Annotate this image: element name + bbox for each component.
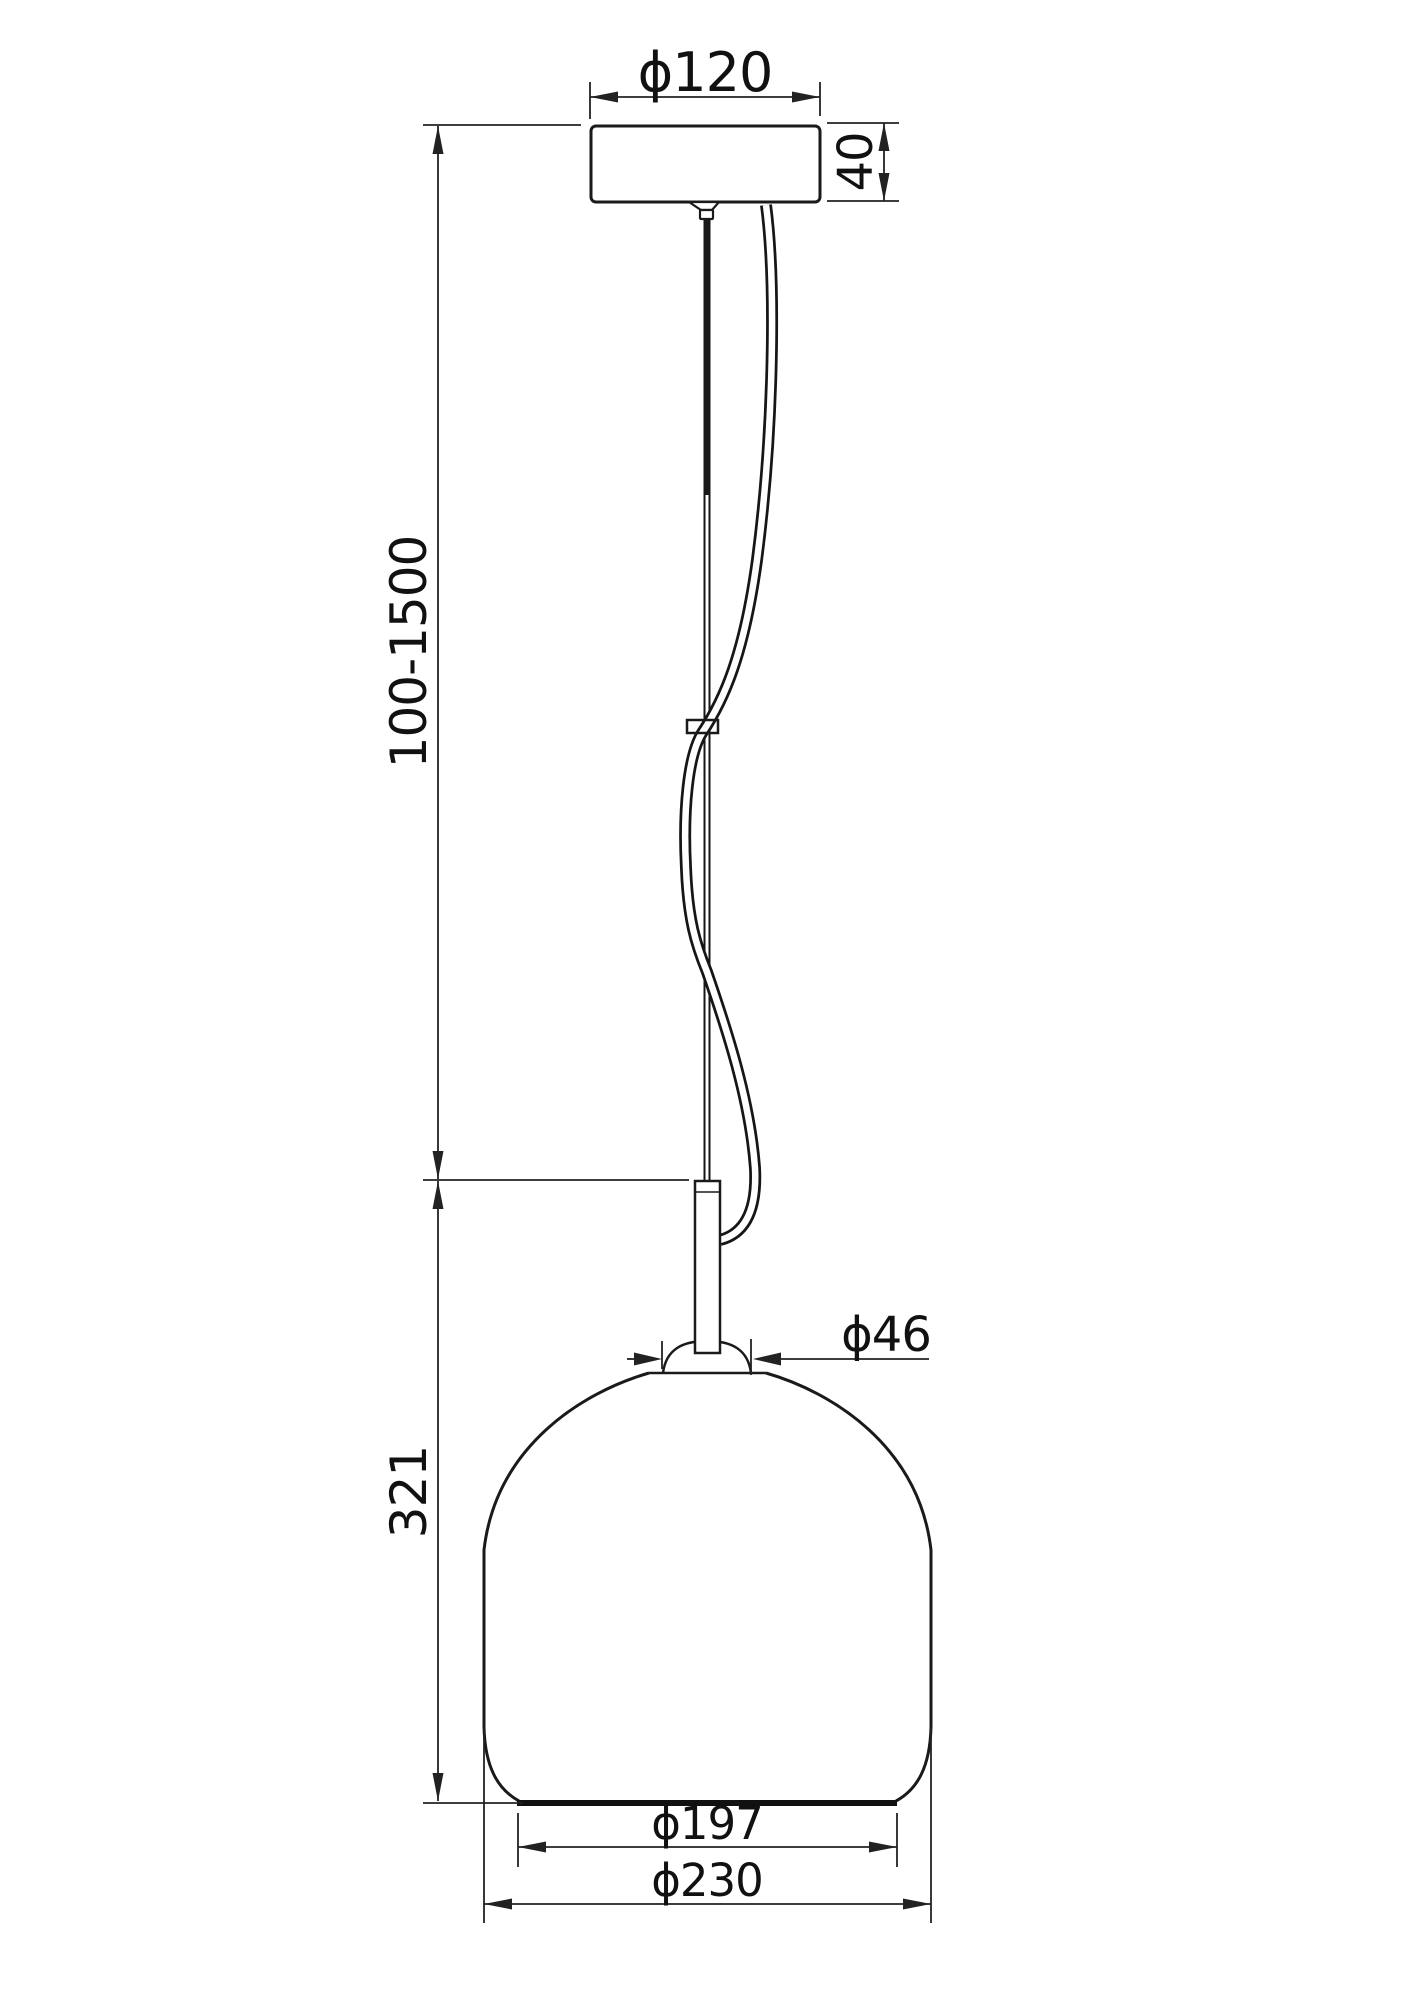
dim-suspension-length bbox=[423, 125, 689, 1180]
stem-tube bbox=[695, 1181, 720, 1353]
dimension-lines bbox=[423, 82, 931, 1923]
technical-drawing: ϕ120 40 100-1500 321 ϕ46 ϕ197 ϕ230 bbox=[0, 0, 1413, 2000]
cable-fitting-cone bbox=[689, 202, 719, 210]
shade-left-profile bbox=[484, 1373, 649, 1801]
label-canopy-diameter: ϕ120 bbox=[638, 41, 773, 104]
label-neck-diameter: ϕ46 bbox=[841, 1307, 931, 1363]
label-canopy-height: 40 bbox=[828, 132, 884, 191]
ceiling-canopy bbox=[591, 126, 820, 202]
drawing-canvas: ϕ120 40 100-1500 321 ϕ46 ϕ197 ϕ230 bbox=[0, 0, 1413, 2000]
label-suspension-length: 100-1500 bbox=[380, 536, 438, 769]
label-max-diameter: ϕ230 bbox=[651, 1854, 763, 1907]
label-shade-height: 321 bbox=[380, 1446, 438, 1538]
power-cord-core bbox=[685, 205, 772, 1240]
product-outline bbox=[484, 126, 931, 1803]
dimension-labels: ϕ120 40 100-1500 321 ϕ46 ϕ197 ϕ230 bbox=[380, 41, 931, 1907]
power-cord bbox=[685, 205, 772, 1240]
label-bottom-opening: ϕ197 bbox=[651, 1797, 763, 1850]
shade-right-profile bbox=[766, 1373, 931, 1801]
cable-fitting-bead bbox=[700, 210, 713, 219]
dim-shade-height bbox=[423, 1181, 523, 1803]
